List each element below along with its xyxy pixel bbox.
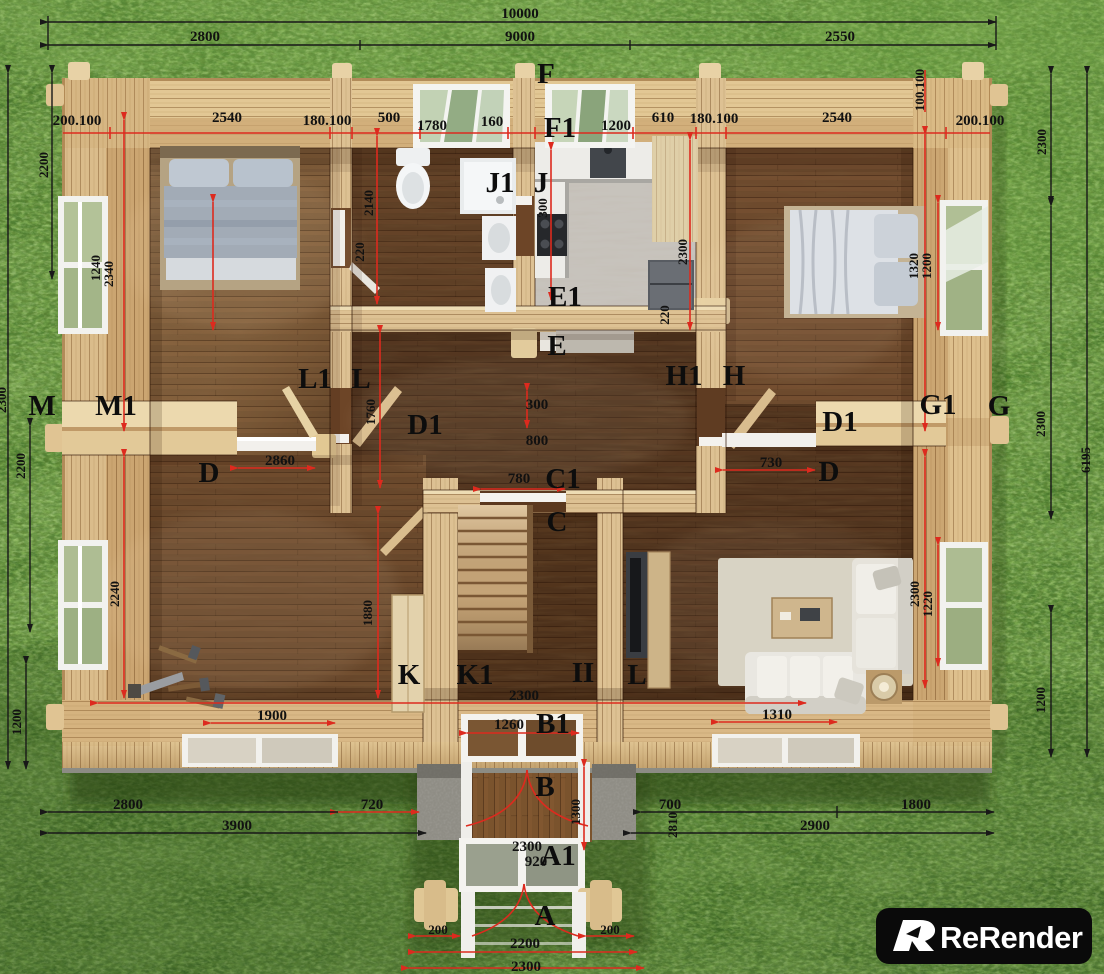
- svg-text:J1: J1: [486, 167, 515, 199]
- svg-text:500: 500: [378, 110, 401, 126]
- svg-text:2340: 2340: [101, 261, 116, 287]
- svg-text:9000: 9000: [505, 29, 535, 45]
- svg-text:220: 220: [657, 305, 672, 325]
- svg-text:730: 730: [760, 455, 783, 471]
- svg-text:780: 780: [508, 471, 531, 487]
- svg-text:1760: 1760: [363, 399, 378, 425]
- svg-text:700: 700: [659, 797, 682, 813]
- svg-text:ReRender: ReRender: [940, 920, 1083, 955]
- svg-text:610: 610: [652, 110, 675, 126]
- svg-text:2540: 2540: [212, 110, 242, 126]
- svg-text:II: II: [572, 657, 595, 689]
- svg-text:200.100: 200.100: [956, 113, 1005, 129]
- svg-text:E1: E1: [548, 281, 582, 313]
- svg-text:2300: 2300: [675, 239, 690, 265]
- svg-text:1880: 1880: [360, 600, 375, 626]
- svg-text:1310: 1310: [762, 707, 792, 723]
- svg-text:J: J: [534, 167, 549, 199]
- svg-text:100.100: 100.100: [912, 69, 927, 111]
- svg-text:300: 300: [526, 397, 549, 413]
- svg-text:M1: M1: [95, 390, 137, 422]
- svg-text:G: G: [988, 390, 1011, 422]
- svg-text:1200: 1200: [601, 118, 631, 134]
- svg-text:220: 220: [352, 242, 367, 262]
- svg-text:K1: K1: [456, 659, 493, 691]
- svg-text:2200: 2200: [36, 152, 51, 178]
- svg-text:1200: 1200: [1033, 687, 1048, 713]
- svg-text:200.100: 200.100: [53, 113, 102, 129]
- svg-text:K: K: [398, 659, 421, 691]
- svg-text:1780: 1780: [417, 118, 447, 134]
- svg-text:2240: 2240: [107, 581, 122, 607]
- svg-text:2200: 2200: [13, 453, 28, 479]
- svg-text:2800: 2800: [113, 797, 143, 813]
- svg-text:2300: 2300: [509, 688, 539, 704]
- svg-text:2300: 2300: [511, 959, 541, 974]
- svg-text:200: 200: [428, 922, 448, 937]
- svg-text:B1: B1: [536, 708, 570, 740]
- svg-text:F1: F1: [544, 112, 576, 144]
- svg-text:1220: 1220: [920, 591, 935, 617]
- svg-text:H: H: [723, 360, 746, 392]
- svg-text:D1: D1: [822, 406, 857, 438]
- svg-text:2860: 2860: [265, 453, 295, 469]
- svg-text:2800: 2800: [190, 29, 220, 45]
- svg-text:B: B: [535, 771, 554, 803]
- svg-text:E: E: [547, 330, 566, 362]
- svg-text:2540: 2540: [822, 110, 852, 126]
- svg-text:M: M: [28, 390, 55, 422]
- svg-text:200: 200: [600, 922, 620, 937]
- svg-text:1200: 1200: [919, 253, 934, 279]
- svg-text:D: D: [819, 456, 840, 488]
- svg-text:C: C: [547, 506, 568, 538]
- svg-text:6195: 6195: [1078, 447, 1093, 474]
- svg-text:D: D: [199, 457, 220, 489]
- svg-text:2810: 2810: [665, 812, 680, 838]
- svg-text:A: A: [535, 900, 556, 932]
- svg-text:D1: D1: [407, 409, 442, 441]
- svg-text:F: F: [537, 58, 555, 90]
- svg-text:10000: 10000: [501, 6, 539, 22]
- svg-text:800: 800: [526, 433, 549, 449]
- svg-text:2550: 2550: [825, 29, 855, 45]
- svg-text:G1: G1: [919, 389, 956, 421]
- svg-text:300: 300: [535, 198, 550, 218]
- svg-text:1900: 1900: [257, 708, 287, 724]
- svg-text:3900: 3900: [222, 818, 252, 834]
- svg-text:A1: A1: [540, 840, 575, 872]
- svg-text:2300: 2300: [1034, 129, 1049, 155]
- svg-text:1800: 1800: [901, 797, 931, 813]
- svg-text:H1: H1: [665, 360, 702, 392]
- svg-text:2140: 2140: [361, 190, 376, 216]
- svg-text:2300: 2300: [1033, 411, 1048, 437]
- svg-text:2300: 2300: [0, 387, 9, 413]
- svg-text:L1: L1: [298, 363, 332, 395]
- svg-text:L: L: [351, 363, 370, 395]
- svg-text:720: 720: [361, 797, 384, 813]
- svg-text:1200: 1200: [9, 709, 24, 735]
- svg-text:180.100: 180.100: [303, 113, 352, 129]
- svg-text:1260: 1260: [494, 717, 524, 733]
- svg-text:C1: C1: [545, 463, 580, 495]
- svg-text:180.100: 180.100: [690, 111, 739, 127]
- svg-text:1300: 1300: [568, 799, 583, 825]
- svg-text:2900: 2900: [800, 818, 830, 834]
- svg-text:2300: 2300: [512, 839, 542, 855]
- svg-text:L: L: [627, 659, 646, 691]
- svg-text:2200: 2200: [510, 936, 540, 952]
- svg-text:160: 160: [481, 114, 504, 130]
